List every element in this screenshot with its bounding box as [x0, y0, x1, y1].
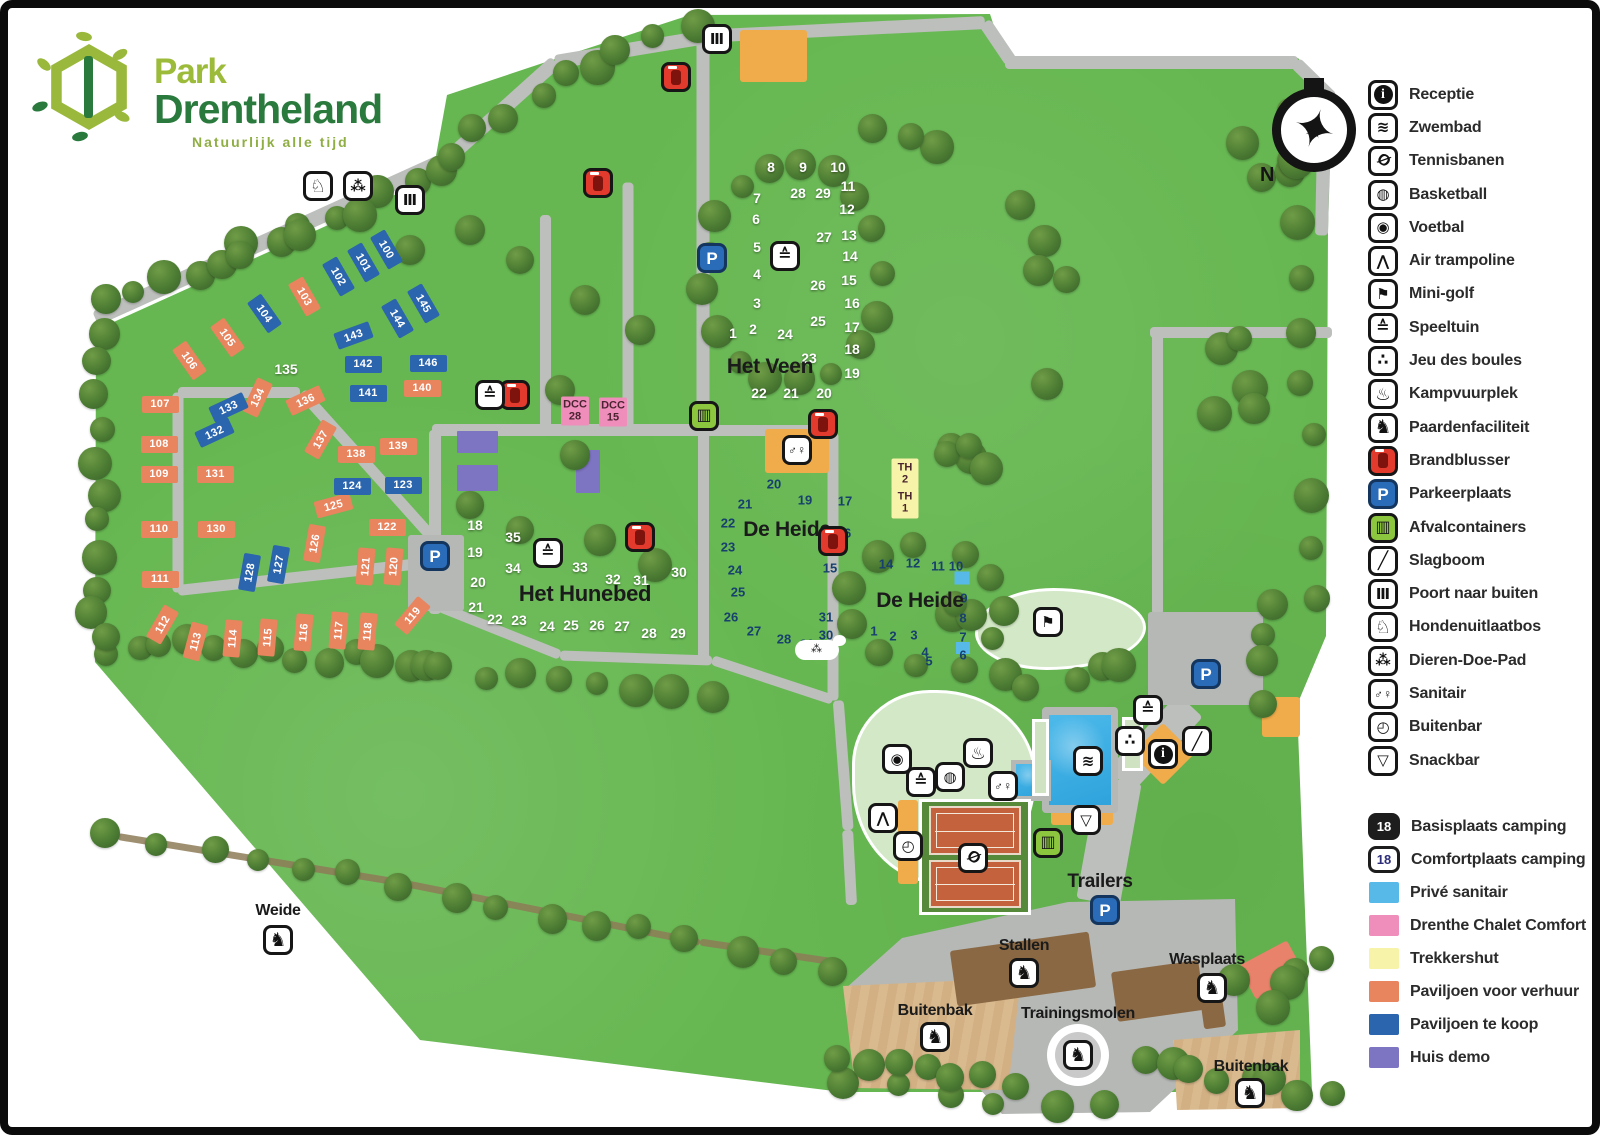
- legend-label: Tennisbanen: [1409, 152, 1504, 170]
- legend-row-poort: ⅢPoort naar buiten: [1368, 577, 1588, 610]
- tree: [1289, 265, 1315, 291]
- polar-bear-graphic: ⁂: [795, 632, 847, 666]
- tree: [887, 1073, 910, 1096]
- legend-label: Brandblusser: [1409, 452, 1510, 470]
- tree: [770, 948, 798, 976]
- legend-label: Sanitair: [1409, 685, 1466, 703]
- tree: [969, 1061, 996, 1088]
- pitch-number: 27: [816, 229, 832, 245]
- pitch-number: 5: [925, 654, 932, 669]
- plot-139: 139: [380, 438, 417, 455]
- tree: [670, 925, 698, 953]
- speeltuin-icon: ≙: [1133, 695, 1163, 725]
- pitch-number: 25: [563, 617, 579, 633]
- speeltuin-icon: ≙: [770, 241, 800, 271]
- pitch-number: 25: [731, 585, 745, 600]
- pitch-number: 7: [753, 190, 761, 206]
- tree: [970, 452, 1003, 485]
- tree: [818, 957, 847, 986]
- tree: [1251, 623, 1275, 647]
- legend-row-drenthe-chalet-comfort: Drenthe Chalet Comfort: [1368, 909, 1593, 942]
- parking-icon: P: [1090, 895, 1120, 925]
- tree: [570, 285, 601, 316]
- tree: [384, 873, 412, 901]
- pitch-number: 21: [783, 385, 799, 401]
- legend-row-boules: ∴Jeu des boules: [1368, 344, 1588, 377]
- paw-icon: ⁂: [1368, 646, 1398, 676]
- zwembad-icon: ≋: [1368, 113, 1398, 143]
- legend-label: Slagboom: [1409, 552, 1485, 570]
- compass-rose: ✦ ✦ N: [1272, 88, 1356, 172]
- tree: [1226, 126, 1259, 159]
- pitch-number: 13: [841, 227, 857, 243]
- tree: [78, 447, 111, 480]
- pitch-number: 11: [931, 559, 945, 574]
- tree: [1294, 478, 1329, 513]
- pitch-number: 14: [879, 557, 893, 572]
- tree: [885, 1049, 913, 1077]
- pitch-number: 34: [505, 560, 521, 576]
- legend-label: Receptie: [1409, 86, 1474, 104]
- tree: [82, 347, 111, 376]
- fire-icon: [583, 168, 613, 198]
- tree: [1174, 1055, 1202, 1083]
- legend-label: Paardenfaciliteit: [1409, 419, 1529, 437]
- pitch-number: 16: [844, 295, 860, 311]
- zwembad-icon: ≋: [1073, 746, 1103, 776]
- legend-label: Zwembad: [1409, 119, 1481, 137]
- marker-th-2: TH2: [892, 459, 919, 490]
- road-segment: [842, 830, 857, 906]
- plot-138: 138: [338, 446, 375, 463]
- plot-119: 119: [394, 595, 431, 634]
- logo-mark: [42, 40, 136, 134]
- pitch-number: 27: [614, 618, 630, 634]
- tree: [505, 658, 535, 688]
- plot-116: 116: [293, 613, 313, 651]
- pitch-number: 29: [670, 625, 686, 641]
- tree: [820, 363, 842, 385]
- tree: [1065, 667, 1090, 692]
- tree: [898, 123, 925, 150]
- pitch-number: 26: [810, 277, 826, 293]
- road-segment: [697, 40, 710, 432]
- tree: [1302, 423, 1326, 447]
- parking-icon: P: [697, 243, 727, 273]
- legend-row-kampvuur: ♨Kampvuurplek: [1368, 378, 1588, 411]
- plot-102: 102: [321, 256, 354, 297]
- plot-131: 131: [197, 466, 234, 483]
- tree: [1257, 589, 1288, 620]
- tree: [1005, 190, 1035, 220]
- legend-row-airtramp: ⋀Air trampoline: [1368, 244, 1588, 277]
- pitch-number: 29: [815, 185, 831, 201]
- legend-label: Trekkershut: [1410, 950, 1499, 968]
- plot-105: 105: [209, 317, 244, 357]
- pitch-number: 12: [906, 556, 920, 571]
- tree: [226, 241, 253, 268]
- legend-row-comfortplaats-camping: 18Comfortplaats camping: [1368, 843, 1593, 876]
- legend-row-zwembad: ≋Zwembad: [1368, 111, 1588, 144]
- tree: [343, 198, 376, 231]
- tree: [1053, 266, 1080, 293]
- plot-117: 117: [328, 611, 348, 649]
- tree: [506, 246, 534, 274]
- snackbar-icon: ▽: [1368, 746, 1398, 776]
- plot-142: 142: [345, 356, 382, 373]
- pitch-number: 24: [539, 618, 555, 634]
- pitch-number: 20: [816, 385, 832, 401]
- tree: [1256, 990, 1291, 1025]
- legend-row-paard: ♞Paardenfaciliteit: [1368, 411, 1588, 444]
- pitch-number: 10: [949, 559, 963, 574]
- tree: [1281, 1080, 1312, 1111]
- plot-106: 106: [171, 340, 206, 380]
- legend-label: Voetbal: [1409, 219, 1464, 237]
- basketball-icon: ◍: [1368, 180, 1398, 210]
- legend-label: Basketball: [1409, 186, 1487, 204]
- speeltuin-icon: ≙: [475, 380, 505, 410]
- park-map-screenshot: 1031051061071081091101111121131141151161…: [0, 0, 1600, 1135]
- pitch-number: 135: [274, 361, 297, 377]
- huis-demo-1: [457, 431, 498, 453]
- road-segment: [833, 700, 854, 831]
- legend-label: Privé sanitair: [1410, 884, 1508, 902]
- area-label-stallen: Stallen: [999, 937, 1049, 955]
- pitch-number: 24: [728, 563, 742, 578]
- tennisbanen-icon: Ø: [958, 843, 988, 873]
- tree: [145, 833, 167, 855]
- sanitair-icon: ♂♀: [988, 771, 1018, 801]
- slagboom-icon: ╱: [1182, 726, 1212, 756]
- pitch-number: 11: [841, 178, 856, 194]
- pitch-number: 22: [751, 385, 767, 401]
- tree: [936, 1063, 964, 1091]
- parking-icon: P: [420, 541, 450, 571]
- airtramp-icon: ⋀: [1368, 246, 1398, 276]
- pitch-number: 25: [810, 313, 826, 329]
- plot-126: 126: [302, 523, 325, 562]
- voetbal-icon: ◉: [1368, 213, 1398, 243]
- tree: [560, 440, 589, 469]
- tree: [79, 379, 109, 409]
- marker-th-1: TH1: [892, 488, 919, 519]
- tree: [1320, 1081, 1345, 1106]
- legend-row-paw: ⁂Dieren-Doe-Pad: [1368, 644, 1588, 677]
- poort-icon: Ⅲ: [702, 24, 732, 54]
- tree: [1023, 255, 1054, 286]
- legend-label: Kampvuurplek: [1409, 385, 1518, 403]
- tree: [1238, 393, 1270, 425]
- pitch-number: 9: [799, 159, 807, 175]
- road-segment: [173, 392, 184, 592]
- legend-label: Huis demo: [1410, 1049, 1490, 1067]
- pitch-number: 19: [467, 544, 483, 560]
- legend-row-hond: ♘Hondenuitlaatbos: [1368, 611, 1588, 644]
- legend-swatch: [1369, 981, 1399, 1002]
- plot-141: 141: [350, 385, 387, 402]
- tree: [122, 281, 144, 303]
- plot-144: 144: [380, 298, 413, 339]
- parking-icon: P: [1368, 479, 1398, 509]
- tree: [483, 895, 509, 921]
- plot-101: 101: [346, 242, 379, 283]
- tennisbanen-icon: Ø: [1368, 146, 1398, 176]
- legend-facilities: iReceptie≋ZwembadØTennisbanen◍Basketball…: [1368, 78, 1588, 777]
- minigolf-icon: ⚑: [1368, 279, 1398, 309]
- plot-118: 118: [357, 612, 377, 650]
- poort-icon: Ⅲ: [1368, 579, 1398, 609]
- marker-dcc-15: DCC15: [599, 398, 627, 427]
- tree: [619, 674, 653, 708]
- tree: [546, 666, 571, 691]
- pitch-number: 8: [767, 159, 775, 175]
- trash-icon: ▥: [1368, 513, 1398, 543]
- tree: [282, 648, 307, 673]
- tree: [91, 284, 121, 314]
- pitch-number: 22: [487, 611, 503, 627]
- pitch-number: 23: [721, 540, 735, 555]
- snackbar-icon: ▽: [1071, 805, 1101, 835]
- legend-label: Mini-golf: [1409, 285, 1474, 303]
- boules-icon: ∴: [1115, 726, 1145, 756]
- sanitair-icon: ♂♀: [782, 435, 812, 465]
- marker-dcc-28: DCC28: [561, 397, 589, 426]
- tree: [727, 936, 760, 969]
- tree: [247, 849, 269, 871]
- tree: [584, 524, 615, 555]
- tree: [824, 1045, 850, 1071]
- paw-icon: ⁂: [343, 171, 373, 201]
- buitenbar-icon: ◴: [1368, 712, 1398, 742]
- legend-row-receptie: iReceptie: [1368, 78, 1588, 111]
- tree: [832, 571, 866, 605]
- tree: [870, 261, 895, 286]
- pitch-number: 27: [747, 624, 761, 639]
- legend-row-paviljoen-voor-verhuur: Paviljoen voor verhuur: [1368, 975, 1593, 1008]
- plot-122: 122: [369, 519, 406, 536]
- area-label-trainingsmolen: Trainingsmolen: [1021, 1005, 1135, 1023]
- pitch-number: 14: [842, 248, 858, 264]
- legend-swatch: [1369, 1014, 1399, 1035]
- tree: [1102, 648, 1135, 681]
- area-label-wasplaats: Wasplaats: [1169, 951, 1245, 969]
- area-label-het-veen: Het Veen: [727, 355, 813, 379]
- pitch-number: 24: [777, 326, 793, 342]
- tree: [335, 859, 360, 884]
- legend-swatch: 18: [1368, 846, 1400, 873]
- legend-row-paviljoen-te-koop: Paviljoen te koop: [1368, 1008, 1593, 1041]
- tree: [1246, 645, 1278, 677]
- tree: [858, 114, 887, 143]
- legend-row-speeltuin: ≙Speeltuin: [1368, 311, 1588, 344]
- tree: [1012, 674, 1040, 702]
- area-label-buitenbak: Buitenbak: [898, 1002, 973, 1020]
- area-label-de-heide: De Heide: [876, 589, 963, 613]
- legend-label: Speeltuin: [1409, 319, 1479, 337]
- tree: [1197, 396, 1232, 431]
- legend-row-parking: PParkeerplaats: [1368, 478, 1588, 511]
- plot-125: 125: [313, 492, 353, 518]
- speeltuin-icon: ≙: [1368, 313, 1398, 343]
- legend-row-basisplaats-camping: 18Basisplaats camping: [1368, 810, 1593, 843]
- minigolf-lane-west: [1032, 719, 1049, 796]
- tree: [438, 143, 466, 171]
- legend-label: Afvalcontainers: [1409, 519, 1526, 537]
- pitch-number: 19: [798, 493, 812, 508]
- legend-swatch: [1369, 948, 1399, 969]
- logo-line2: Drentheland: [154, 86, 382, 133]
- legend-label: Jeu des boules: [1409, 352, 1522, 370]
- pitch-number: 17: [844, 319, 860, 335]
- legend-label: Parkeerplaats: [1409, 485, 1511, 503]
- tree: [455, 215, 485, 245]
- tree: [600, 35, 630, 65]
- compass-north-label: N: [1260, 164, 1274, 187]
- pitch-number: 22: [721, 516, 735, 531]
- building-orange-north: [740, 30, 807, 82]
- poort-icon: Ⅲ: [395, 185, 425, 215]
- plot-103: 103: [287, 276, 320, 317]
- tree: [641, 24, 665, 48]
- tree: [553, 60, 579, 86]
- tree: [1287, 370, 1313, 396]
- pitch-number: 15: [841, 272, 857, 288]
- tree: [1002, 1073, 1029, 1100]
- tree: [1299, 536, 1323, 560]
- legend-swatch: 18: [1368, 813, 1400, 840]
- legend-row-buitenbar: ◴Buitenbar: [1368, 711, 1588, 744]
- pitch-number: 23: [511, 612, 527, 628]
- pitch-number: 12: [839, 201, 855, 217]
- tree: [1227, 326, 1252, 351]
- tree: [85, 507, 109, 531]
- legend-row-trash: ▥Afvalcontainers: [1368, 511, 1588, 544]
- tree: [475, 667, 497, 689]
- plot-137: 137: [303, 419, 336, 460]
- pitch-number: 5: [753, 239, 761, 255]
- buitenbar-icon: ◴: [893, 831, 923, 861]
- tree: [315, 648, 344, 677]
- tree: [1028, 225, 1061, 258]
- pitch-number: 20: [470, 574, 486, 590]
- paard-icon: ♞: [1063, 1040, 1093, 1070]
- tree: [1286, 318, 1316, 348]
- legend-swatch: [1369, 882, 1399, 903]
- hond-icon: ♘: [303, 171, 333, 201]
- tree: [586, 672, 608, 694]
- pitch-number: 6: [959, 648, 966, 663]
- legend-label: Basisplaats camping: [1411, 818, 1566, 836]
- road-segment: [1152, 332, 1163, 615]
- voetbal-icon: ◉: [882, 744, 912, 774]
- pitch-number: 2: [749, 321, 757, 337]
- pitch-number: 18: [844, 341, 860, 357]
- legend-label: Air trampoline: [1409, 252, 1515, 270]
- tree: [698, 200, 730, 232]
- tree: [147, 260, 180, 293]
- tree: [82, 540, 117, 575]
- paard-icon: ♞: [1235, 1078, 1265, 1108]
- pitch-number: 33: [572, 559, 588, 575]
- pitch-number: 1: [870, 624, 877, 639]
- pitch-number: 6: [752, 211, 760, 227]
- legend-swatch: [1369, 915, 1399, 936]
- area-label-trailers: Trailers: [1067, 871, 1132, 893]
- tree: [202, 836, 229, 863]
- road-segment: [623, 182, 634, 430]
- legend-label: Snackbar: [1409, 752, 1479, 770]
- tree: [456, 491, 483, 518]
- pitch-number: 35: [505, 529, 521, 545]
- plot-104: 104: [246, 293, 281, 333]
- tree: [861, 301, 893, 333]
- slagboom-icon: ╱: [1368, 546, 1398, 576]
- legend-label: Hondenuitlaatbos: [1409, 618, 1541, 636]
- tree: [458, 114, 486, 142]
- pitch-number: 3: [753, 295, 761, 311]
- tree: [442, 883, 472, 913]
- legend-label: Comfortplaats camping: [1411, 851, 1586, 869]
- tree: [1309, 946, 1334, 971]
- tree: [731, 175, 754, 198]
- tree: [488, 104, 518, 134]
- road-segment: [560, 650, 712, 665]
- tree: [1280, 205, 1315, 240]
- pitch-number: 20: [767, 477, 781, 492]
- trash-icon: ▥: [689, 401, 719, 431]
- tree: [1031, 368, 1063, 400]
- sanitair-icon: ♂♀: [1368, 679, 1398, 709]
- tree: [1304, 585, 1331, 612]
- legend-row-sanitair: ♂♀Sanitair: [1368, 677, 1588, 710]
- pitch-number: 18: [467, 517, 483, 533]
- plot-107: 107: [142, 396, 179, 413]
- paard-icon: ♞: [263, 925, 293, 955]
- legend-row-fire: Brandblusser: [1368, 444, 1588, 477]
- tree: [582, 911, 612, 941]
- pitch-number: 21: [468, 599, 484, 615]
- hond-icon: ♘: [1368, 612, 1398, 642]
- pitch-number: 2: [889, 629, 896, 644]
- pitch-number: 4: [753, 266, 761, 282]
- tree: [532, 83, 557, 108]
- pitch-number: 17: [838, 494, 852, 509]
- legend-row-minigolf: ⚑Mini-golf: [1368, 278, 1588, 311]
- legend-row-privé-sanitair: Privé sanitair: [1368, 876, 1593, 909]
- paard-icon: ♞: [1009, 958, 1039, 988]
- tree: [920, 130, 953, 163]
- legend-label: Buitenbar: [1409, 718, 1482, 736]
- plot-111: 111: [142, 571, 179, 588]
- legend-swatch: [1369, 1047, 1399, 1068]
- tree: [686, 273, 718, 305]
- legend-row-snackbar: ▽Snackbar: [1368, 744, 1588, 777]
- plot-109: 109: [141, 466, 178, 483]
- legend-label: Drenthe Chalet Comfort: [1410, 917, 1586, 935]
- plot-145: 145: [406, 283, 439, 324]
- pitch-number: 28: [641, 625, 657, 641]
- legend-label: Paviljoen te koop: [1410, 1016, 1538, 1034]
- legend-row-voetbal: ◉Voetbal: [1368, 211, 1588, 244]
- area-label-weide: Weide: [255, 902, 300, 920]
- legend-label: Dieren-Doe-Pad: [1409, 652, 1526, 670]
- basketball-icon: ◍: [935, 762, 965, 792]
- pitch-number: 26: [589, 617, 605, 633]
- plot-124: 124: [334, 478, 371, 495]
- pitch-number: 28: [790, 185, 806, 201]
- pitch-number: 19: [844, 365, 860, 381]
